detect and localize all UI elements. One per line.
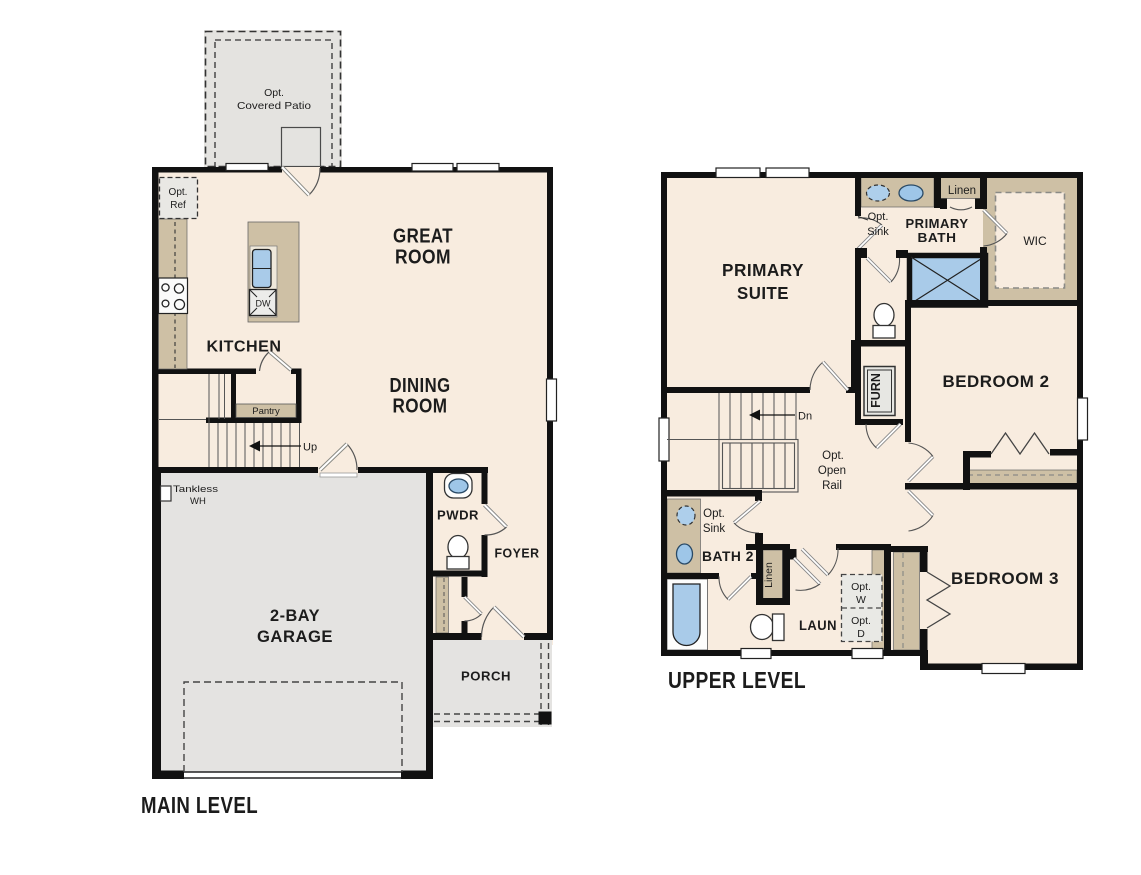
- svg-text:Pantry: Pantry: [252, 406, 280, 417]
- svg-text:FURN: FURN: [869, 373, 883, 408]
- svg-text:2-BAY: 2-BAY: [270, 607, 320, 625]
- svg-text:FOYER: FOYER: [495, 547, 540, 561]
- svg-text:Covered Patio: Covered Patio: [237, 100, 311, 112]
- svg-text:DW: DW: [256, 299, 271, 309]
- svg-text:SUITE: SUITE: [737, 283, 789, 303]
- svg-text:Linen: Linen: [948, 185, 976, 197]
- svg-text:PWDR: PWDR: [437, 509, 479, 523]
- svg-text:UPPER LEVEL: UPPER LEVEL: [668, 667, 806, 693]
- svg-text:GREAT: GREAT: [393, 226, 453, 248]
- svg-text:D: D: [857, 628, 865, 640]
- svg-text:BATH 2: BATH 2: [702, 549, 754, 564]
- svg-text:GARAGE: GARAGE: [257, 628, 333, 646]
- svg-text:KITCHEN: KITCHEN: [207, 339, 282, 356]
- svg-text:Opt.: Opt.: [264, 87, 284, 99]
- svg-text:Up: Up: [303, 442, 317, 454]
- svg-text:Ref: Ref: [170, 200, 186, 211]
- svg-text:PRIMARY: PRIMARY: [906, 216, 969, 231]
- svg-text:WH: WH: [190, 496, 206, 507]
- svg-text:Sink: Sink: [703, 523, 726, 535]
- svg-text:PORCH: PORCH: [461, 670, 511, 684]
- svg-text:BEDROOM 3: BEDROOM 3: [951, 570, 1059, 588]
- svg-text:MAIN LEVEL: MAIN LEVEL: [141, 792, 258, 818]
- svg-text:Dn: Dn: [798, 411, 812, 423]
- svg-text:Open: Open: [818, 465, 846, 477]
- svg-text:Opt.: Opt.: [851, 615, 871, 627]
- svg-text:ROOM: ROOM: [395, 247, 451, 269]
- svg-text:Opt.: Opt.: [703, 508, 725, 520]
- svg-text:Tankless: Tankless: [173, 484, 218, 495]
- svg-text:BEDROOM 2: BEDROOM 2: [943, 373, 1050, 391]
- svg-text:Opt.: Opt.: [169, 187, 188, 198]
- svg-text:Linen: Linen: [763, 562, 775, 588]
- svg-text:Opt.: Opt.: [822, 450, 844, 462]
- svg-text:ROOM: ROOM: [393, 396, 448, 418]
- svg-text:DINING: DINING: [390, 375, 451, 397]
- svg-text:Sink: Sink: [867, 226, 889, 238]
- svg-text:Opt.: Opt.: [851, 581, 871, 593]
- svg-text:PRIMARY: PRIMARY: [722, 260, 804, 280]
- svg-text:BATH: BATH: [918, 230, 957, 245]
- svg-text:Rail: Rail: [822, 480, 842, 492]
- svg-text:LAUN: LAUN: [799, 618, 837, 633]
- svg-text:Opt.: Opt.: [868, 211, 889, 223]
- svg-text:WIC: WIC: [1023, 234, 1047, 248]
- svg-text:W: W: [856, 594, 866, 606]
